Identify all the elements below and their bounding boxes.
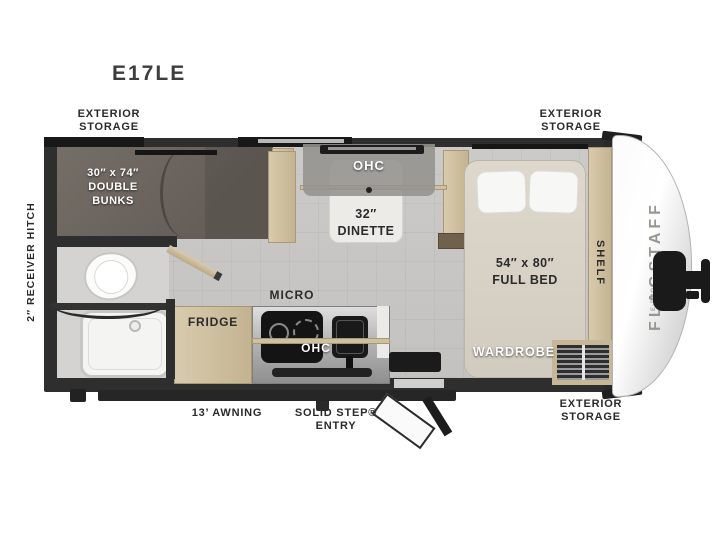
label-micro: MICRO xyxy=(254,288,330,302)
bed-window xyxy=(472,144,588,149)
toilet-seat xyxy=(91,257,131,297)
cabinet-knob xyxy=(366,187,372,193)
cooktop xyxy=(261,311,323,363)
top-wall-segment xyxy=(44,137,144,147)
label-dinette-ohc: OHC xyxy=(303,158,435,173)
label-line: STORAGE xyxy=(516,121,626,134)
label-entry: SOLID STEP® ENTRY xyxy=(284,407,388,433)
entry-mat xyxy=(389,352,441,372)
model-title: E17LE xyxy=(112,62,186,86)
label-line: SOLID STEP® xyxy=(284,407,388,420)
label-line: EXTERIOR xyxy=(54,108,164,121)
bathroom-partition-wall xyxy=(166,299,175,379)
dresser-divider xyxy=(582,345,585,380)
label-line: DINETTE xyxy=(318,223,414,240)
bathtub xyxy=(80,310,170,378)
label-wardrobe: WARDROBE xyxy=(462,345,566,359)
pillow xyxy=(476,170,526,214)
label-line: 32″ xyxy=(318,206,414,223)
bathtub-drain xyxy=(129,320,141,332)
bedside-cabinet xyxy=(438,233,466,249)
label-awning: 13’ AWNING xyxy=(167,407,287,420)
hitch-foot xyxy=(686,291,699,299)
label-line: EXTERIOR xyxy=(516,108,626,121)
awning-rail xyxy=(98,390,456,401)
entry-pillar xyxy=(377,306,389,358)
floorplan: E17LE EXTERIOR STORAGE EXTERIOR STORAGE … xyxy=(0,0,720,540)
label-kitchen-ohc: OHC xyxy=(290,341,342,355)
dinette-exterior-window xyxy=(258,139,344,143)
propane-tank-cover xyxy=(653,251,686,311)
bathtub-basin xyxy=(88,318,162,370)
label-receiver-hitch: 2″ RECEIVER HITCH xyxy=(25,162,39,362)
label-line: FULL BED xyxy=(462,272,588,289)
label-line: 54″ x 80″ xyxy=(462,255,588,272)
label-exterior-storage-top-left: EXTERIOR STORAGE xyxy=(54,108,164,134)
label-double-bunks: 30″ x 74″ DOUBLE BUNKS xyxy=(58,166,168,208)
label-shelf: SHELF xyxy=(594,233,606,293)
label-exterior-storage-top-right: EXTERIOR STORAGE xyxy=(516,108,626,134)
label-line: BUNKS xyxy=(58,194,168,208)
dinette-bench-left xyxy=(268,151,296,243)
bunk-upper-berth xyxy=(205,147,273,239)
label-full-bed: 54″ x 80″ FULL BED xyxy=(462,255,588,289)
kitchen-vent xyxy=(272,368,372,377)
label-line: DOUBLE xyxy=(58,180,168,194)
label-line: 30″ x 74″ xyxy=(58,166,168,180)
pillow xyxy=(528,170,578,214)
label-line: STORAGE xyxy=(54,121,164,134)
label-fridge: FRIDGE xyxy=(174,315,252,329)
label-line: ENTRY xyxy=(284,420,388,433)
stabilizer-jack xyxy=(70,389,86,402)
tongue-jack xyxy=(701,259,710,303)
label-exterior-storage-bottom-right: EXTERIOR STORAGE xyxy=(536,398,646,424)
bunk-window xyxy=(135,150,217,155)
label-line: STORAGE xyxy=(536,411,646,424)
bunk-partition-wall xyxy=(51,236,177,247)
label-dinette: 32″ DINETTE xyxy=(318,206,414,240)
entry-threshold xyxy=(394,379,444,388)
dinette-window-glass xyxy=(328,147,416,150)
label-line: EXTERIOR xyxy=(536,398,646,411)
